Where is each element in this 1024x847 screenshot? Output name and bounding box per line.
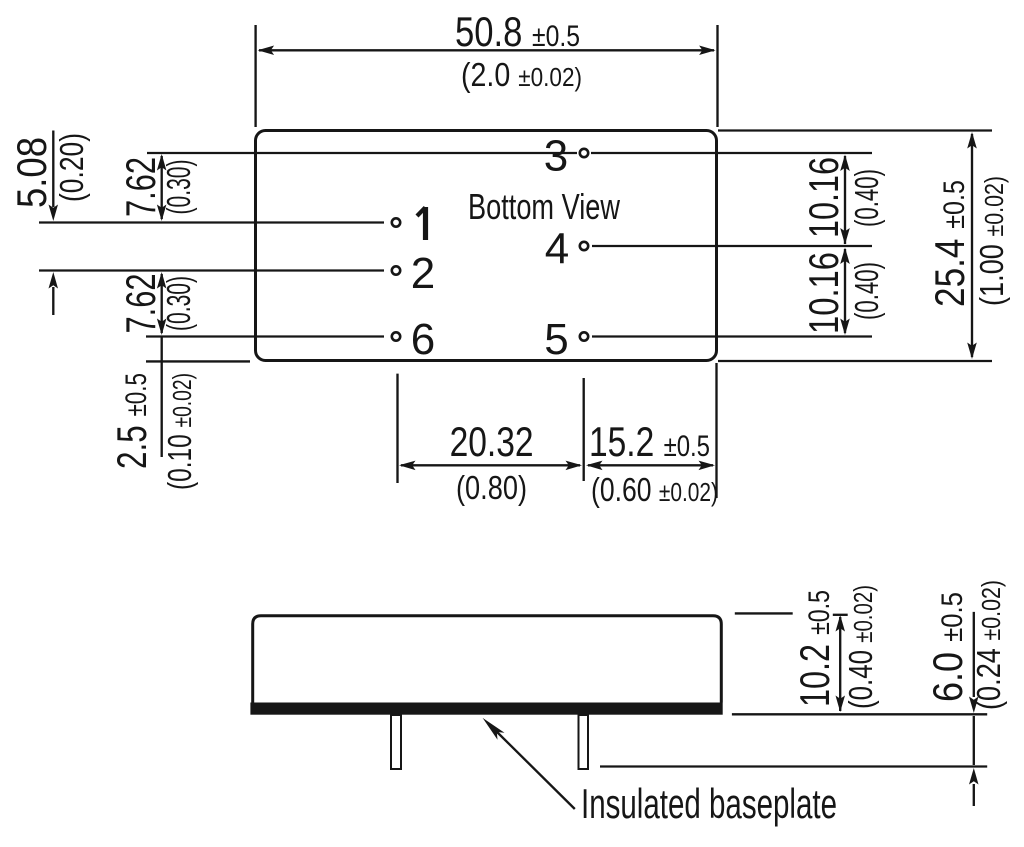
svg-text:(0.40): (0.40) <box>848 169 885 227</box>
svg-text:7.62: 7.62 <box>117 157 164 217</box>
svg-text:Bottom View: Bottom View <box>468 186 621 227</box>
svg-text:10.16: 10.16 <box>800 252 847 334</box>
svg-text:10.16: 10.16 <box>800 157 847 238</box>
svg-text:15.2 ±0.5: 15.2 ±0.5 <box>589 418 710 465</box>
svg-text:(0.40): (0.40) <box>848 262 885 320</box>
svg-text:(1.00 ±0.02): (1.00 ±0.02) <box>973 176 1010 306</box>
svg-text:(0.20): (0.20) <box>53 133 90 202</box>
svg-text:4: 4 <box>545 225 569 274</box>
svg-text:(0.60 ±0.02): (0.60 ±0.02) <box>591 471 718 508</box>
svg-text:(0.30): (0.30) <box>160 276 197 331</box>
svg-text:7.62: 7.62 <box>117 274 164 334</box>
svg-text:6.0 ±0.5: 6.0 ±0.5 <box>924 592 971 702</box>
svg-text:2: 2 <box>411 249 435 298</box>
svg-text:25.4 ±0.5: 25.4 ±0.5 <box>926 180 973 307</box>
svg-text:(2.0 ±0.02): (2.0 ±0.02) <box>461 56 582 93</box>
svg-text:(0.30): (0.30) <box>160 160 197 215</box>
svg-text:2.5 ±0.5: 2.5 ±0.5 <box>108 373 155 469</box>
svg-text:50.8 ±0.5: 50.8 ±0.5 <box>455 8 580 55</box>
svg-text:20.32: 20.32 <box>450 418 534 465</box>
svg-text:10.2 ±0.5: 10.2 ±0.5 <box>791 590 838 707</box>
svg-text:5.08: 5.08 <box>8 137 55 208</box>
svg-text:(0.10 ±0.02): (0.10 ±0.02) <box>161 373 198 490</box>
svg-text:(0.80): (0.80) <box>456 469 527 506</box>
svg-text:5: 5 <box>544 315 568 364</box>
svg-text:3: 3 <box>544 132 568 181</box>
svg-text:Insulated baseplate: Insulated baseplate <box>581 780 837 827</box>
svg-text:(0.40 ±0.02): (0.40 ±0.02) <box>842 585 879 709</box>
svg-text:6: 6 <box>411 315 435 364</box>
svg-text:(0.24 ±0.02): (0.24 ±0.02) <box>970 580 1007 710</box>
